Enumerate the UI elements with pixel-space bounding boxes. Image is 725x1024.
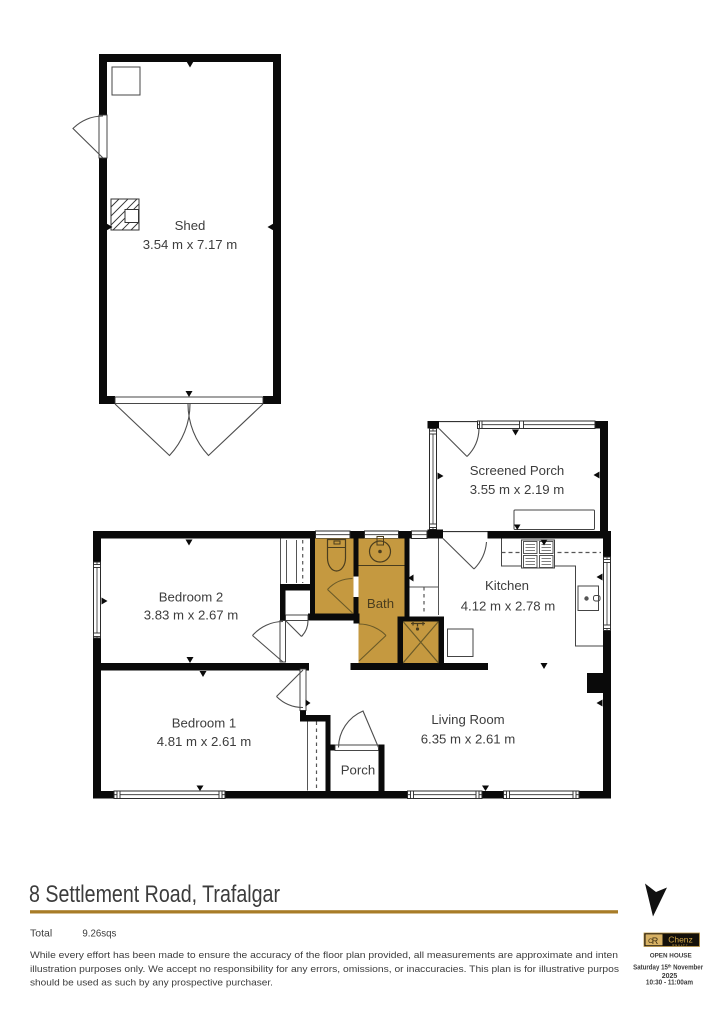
svg-text:3.55 m x 2.19 m: 3.55 m x 2.19 m [470,482,565,497]
svg-text:While every effort has been ma: While every effort has been made to ensu… [30,950,618,960]
svg-text:Shed: Shed [175,218,206,233]
svg-text:Screened Porch: Screened Porch [470,463,565,478]
svg-text:8 Settlement Road, Trafalgar: 8 Settlement Road, Trafalgar [29,881,280,908]
svg-text:Bath: Bath [367,596,394,611]
svg-text:4.12 m x 2.78 m: 4.12 m x 2.78 m [461,599,556,614]
svg-text:4.81 m x 2.61 m: 4.81 m x 2.61 m [157,734,252,749]
svg-text:Kitchen: Kitchen [485,578,529,593]
svg-text:REALTY: REALTY [673,943,689,947]
svg-text:illustration purposes only. We: illustration purposes only. We accept no… [30,964,619,974]
svg-text:9.26sqs: 9.26sqs [82,928,116,940]
svg-text:should be used as such by any: should be used as such by any prospectiv… [30,978,273,988]
svg-text:3.83 m x 2.67 m: 3.83 m x 2.67 m [144,608,239,623]
svg-text:3.54 m x 7.17 m: 3.54 m x 7.17 m [143,237,238,252]
svg-text:Bedroom 2: Bedroom 2 [159,590,224,605]
svg-text:C: C [648,938,653,945]
svg-text:Total: Total [30,928,52,940]
svg-text:Porch: Porch [341,763,375,778]
svg-text:OPEN HOUSE: OPEN HOUSE [650,952,693,959]
svg-text:6.35 m x 2.61 m: 6.35 m x 2.61 m [421,732,516,747]
svg-text:Living Room: Living Room [431,712,504,727]
svg-text:Bedroom 1: Bedroom 1 [172,716,237,731]
svg-text:10:30 - 11:00am: 10:30 - 11:00am [646,979,693,986]
